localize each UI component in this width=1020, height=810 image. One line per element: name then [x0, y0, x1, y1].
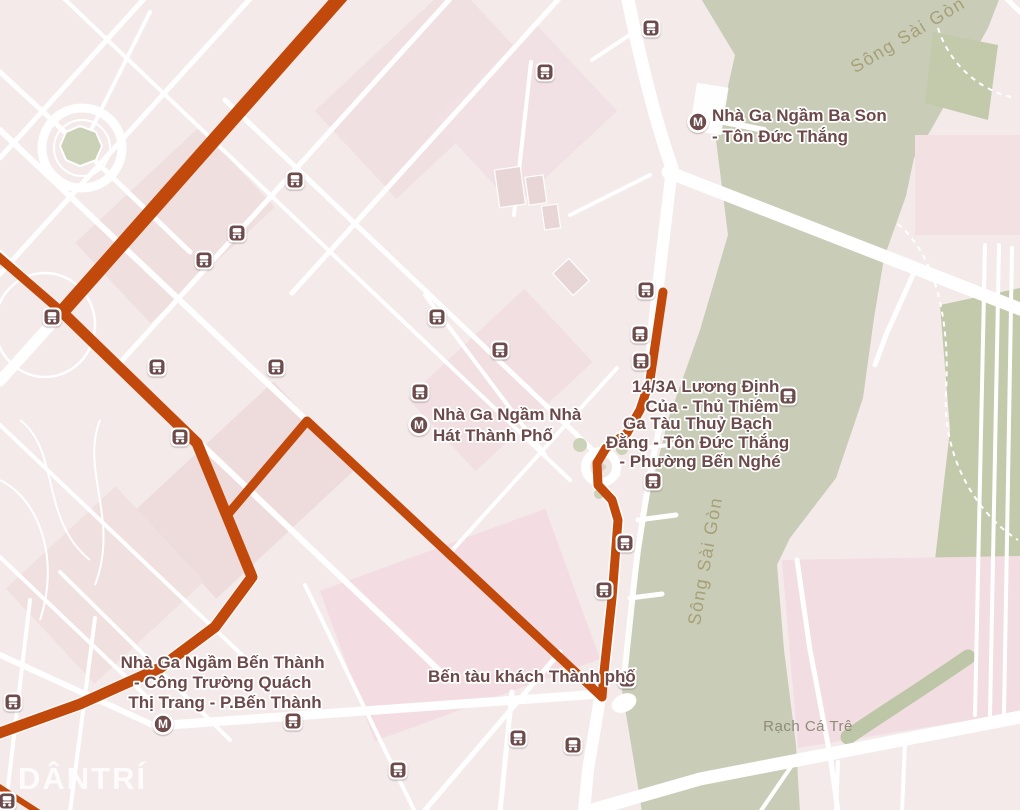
label-luong-dinh-cua: 14/3A Lương Định Của - Thủ Thiêm — [632, 377, 784, 416]
bus-stop-icon[interactable] — [564, 736, 583, 755]
bus-stop-icon[interactable] — [284, 712, 303, 731]
metro-station-icon[interactable]: M — [410, 416, 429, 435]
metro-station-icon[interactable]: M — [689, 113, 708, 132]
svg-text:M: M — [158, 717, 168, 731]
map-svg[interactable]: MMM Sông Sài Gòn Sông Sài Gòn Rạch Cá Tr… — [0, 0, 1020, 810]
bus-stop-icon[interactable] — [4, 693, 23, 712]
label-rach-ca-tre: Rạch Cá Trê — [763, 718, 853, 735]
dantri-watermark: DÂNTRÍ — [18, 760, 147, 796]
bus-stop-icon[interactable] — [642, 19, 661, 38]
bus-stop-icon[interactable] — [428, 308, 447, 327]
bus-stop-icon[interactable] — [631, 325, 650, 344]
map-canvas[interactable]: MMM Sông Sài Gòn Sông Sài Gòn Rạch Cá Tr… — [0, 0, 1020, 810]
bus-stop-icon[interactable] — [43, 308, 62, 327]
bus-stop-icon[interactable] — [171, 428, 190, 447]
bus-stop-icon[interactable] — [491, 341, 510, 360]
svg-text:M: M — [693, 115, 703, 129]
bus-stop-icon[interactable] — [228, 224, 247, 243]
label-ben-tau: Bến tàu khách Thành phố — [428, 667, 636, 686]
metro-station-icon[interactable]: M — [154, 715, 173, 734]
block-right-bank-top — [915, 135, 1020, 235]
bus-stop-icon[interactable] — [632, 352, 651, 371]
bus-stop-icon[interactable] — [0, 792, 17, 810]
bus-stop-icon[interactable] — [644, 472, 663, 491]
bus-stop-icon[interactable] — [637, 281, 656, 300]
label-ben-thanh: Nhà Ga Ngầm Bến Thành - Công Trường Quác… — [121, 653, 330, 712]
bus-stop-icon[interactable] — [389, 761, 408, 780]
bus-stop-icon[interactable] — [616, 534, 635, 553]
bus-stop-icon[interactable] — [267, 358, 286, 377]
bus-stop-icon[interactable] — [286, 171, 305, 190]
bus-stop-icon[interactable] — [411, 383, 430, 402]
bus-stop-icon[interactable] — [595, 581, 614, 600]
bus-stop-icon[interactable] — [536, 63, 555, 82]
svg-text:M: M — [414, 418, 424, 432]
bus-stop-icon[interactable] — [509, 729, 528, 748]
label-ga-tau-thuy: Ga Tàu Thuỷ Bạch Đằng - Tôn Đức Thắng - … — [606, 414, 794, 471]
bus-stop-icon[interactable] — [148, 358, 167, 377]
bus-stop-icon[interactable] — [195, 251, 214, 270]
